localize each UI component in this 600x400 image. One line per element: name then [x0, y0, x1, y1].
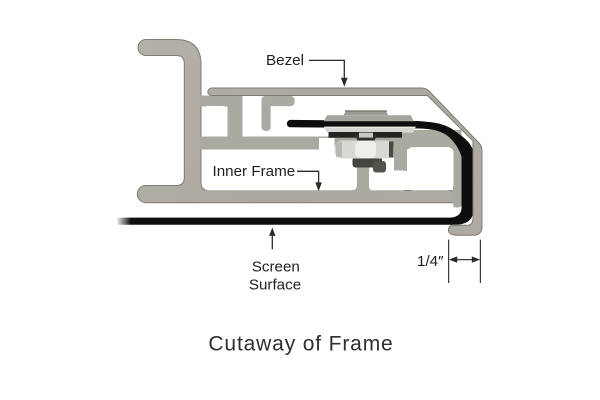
svg-text:Cutaway of Frame: Cutaway of Frame: [208, 332, 393, 355]
svg-text:Screen: Screen: [252, 258, 300, 275]
svg-text:1/4″: 1/4″: [417, 253, 444, 270]
svg-text:Bezel: Bezel: [266, 52, 304, 69]
svg-text:Surface: Surface: [249, 276, 301, 293]
svg-text:Inner Frame: Inner Frame: [213, 163, 296, 180]
